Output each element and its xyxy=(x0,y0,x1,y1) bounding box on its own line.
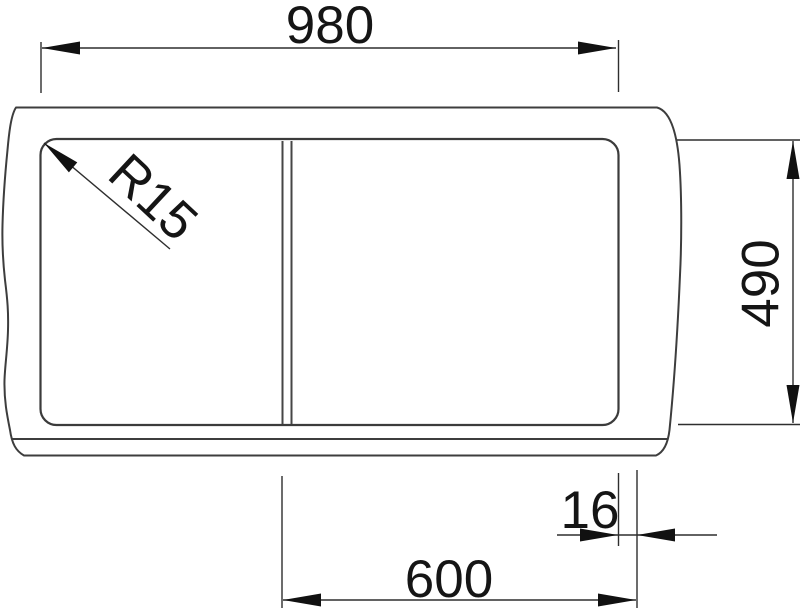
dimension-arrowheads xyxy=(42,42,800,607)
dimension-label-right-depth: 490 xyxy=(735,204,788,364)
technical-drawing-canvas: 980 490 600 16 R15 xyxy=(0,0,800,610)
arrow-600-left xyxy=(283,594,321,607)
arrow-490-bottom xyxy=(787,385,800,423)
arrow-600-right xyxy=(598,594,636,607)
arrow-980-left xyxy=(42,42,80,55)
extension-lines xyxy=(41,40,800,608)
dimension-label-bottom-width: 600 xyxy=(369,553,529,606)
dimension-label-top-width: 980 xyxy=(250,0,410,52)
dimension-lines xyxy=(42,48,793,600)
dimension-label-bottom-gap: 16 xyxy=(510,484,670,537)
drawing-linework xyxy=(0,0,800,610)
arrow-490-top xyxy=(787,141,800,179)
arrow-980-right xyxy=(578,42,616,55)
arrow-radius-r15 xyxy=(44,143,77,172)
